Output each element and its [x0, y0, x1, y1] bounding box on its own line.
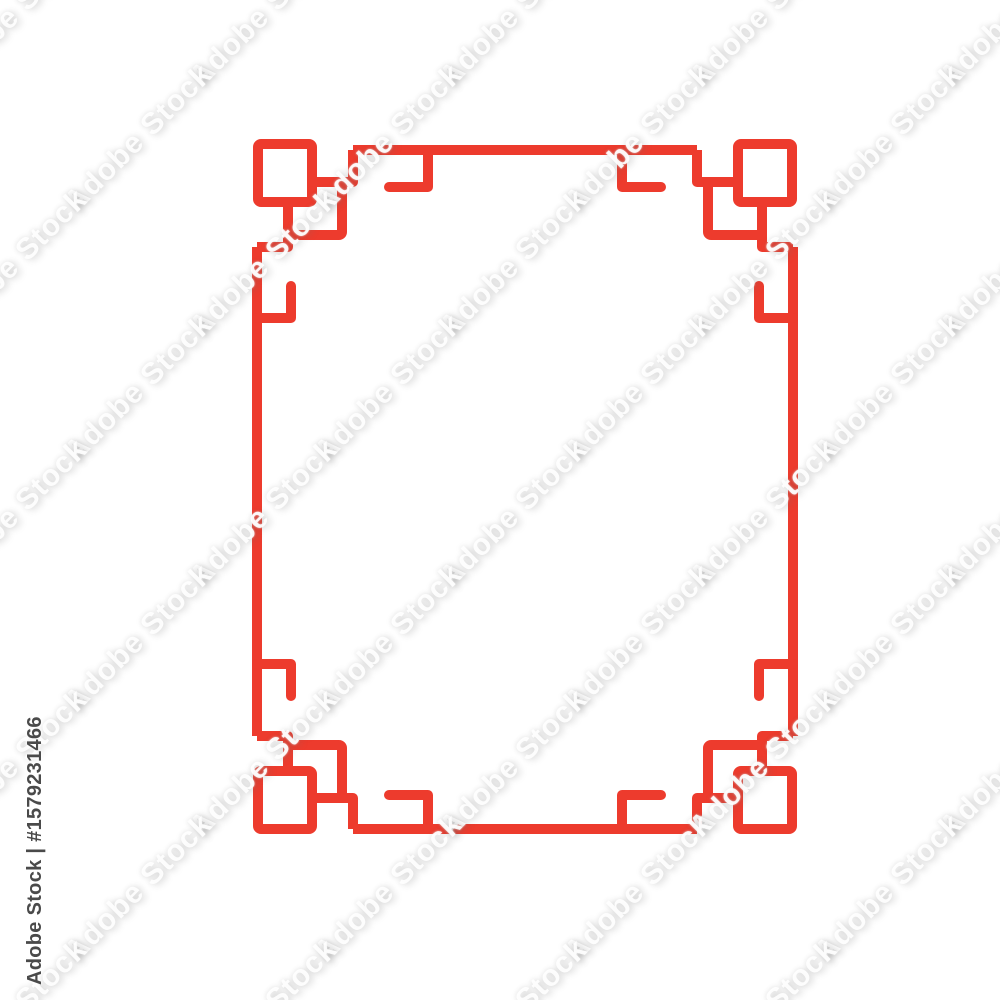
- hook-left-lower: [257, 664, 291, 696]
- hook-top-right: [622, 150, 661, 187]
- corner-elbows: [257, 150, 793, 829]
- frame-borders: [257, 150, 793, 829]
- corner-outer-squares: [258, 144, 792, 829]
- stock-id-label: Adobe Stock | #1579231466: [24, 716, 47, 985]
- hook-bottom-left: [389, 795, 428, 829]
- outer-square-top-left: [258, 144, 312, 202]
- hook-top-left: [389, 150, 428, 187]
- hook-right-lower: [759, 664, 793, 696]
- border-hooks: [257, 150, 793, 829]
- hook-bottom-right: [622, 795, 661, 829]
- stock-image-canvas: Adobe StockAdobe StockAdobe StockAdobe S…: [0, 0, 1000, 1000]
- outer-square-bottom-left: [258, 771, 312, 829]
- hook-left-upper: [257, 286, 291, 318]
- corner-inner-squares: [288, 182, 762, 798]
- outer-square-top-right: [738, 144, 792, 202]
- frame-strokes: [257, 144, 793, 829]
- outer-square-bottom-right: [738, 771, 792, 829]
- chinese-frame-graphic: [0, 0, 1000, 1000]
- hook-right-upper: [759, 286, 793, 318]
